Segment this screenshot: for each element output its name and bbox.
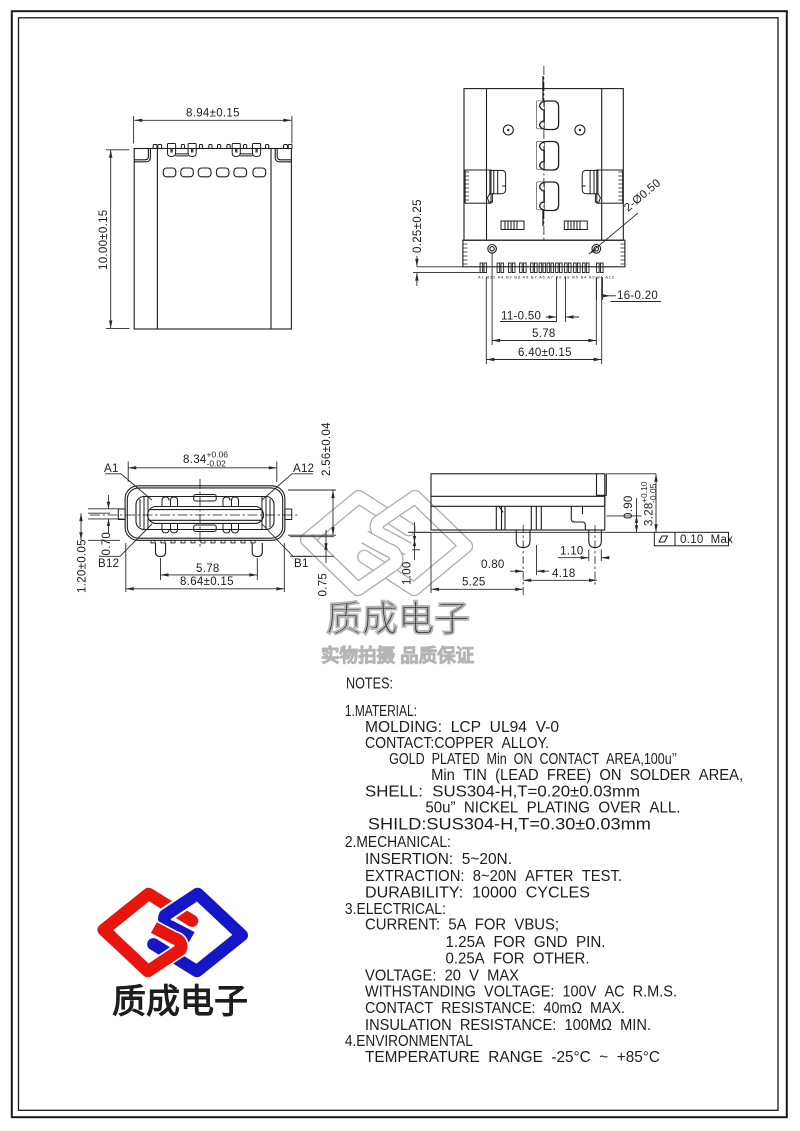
svg-text:10.00±0.15: 10.00±0.15 bbox=[98, 210, 110, 270]
svg-text:EXTRACTION: 8~20N AFTER TES: EXTRACTION: 8~20N AFTER TEST. bbox=[365, 868, 622, 885]
svg-text:实物拍摄 品质保证: 实物拍摄 品质保证 bbox=[321, 645, 475, 666]
svg-text:DURABILITY: 10000 CYCLES: DURABILITY: 10000 CYCLES bbox=[365, 885, 590, 902]
svg-text:3.28: 3.28 bbox=[644, 502, 656, 526]
svg-text:A1 B12 A4 B9 B8 A5 B7 A6 A: A1 B12 A4 B9 B8 A5 B7 A6 A7 B6 A8 B5 B4 … bbox=[478, 275, 615, 280]
svg-text:5.78: 5.78 bbox=[196, 563, 220, 575]
svg-text:11-0.50: 11-0.50 bbox=[501, 311, 541, 323]
svg-text:1.MATERIAL:: 1.MATERIAL: bbox=[345, 703, 417, 720]
svg-text:SHELL: SUS304-H,T=0.20±0.03mm: SHELL: SUS304-H,T=0.20±0.03mm bbox=[365, 783, 640, 800]
svg-text:CURRENT: 5A FOR VBUS;: CURRENT: 5A FOR VBUS; bbox=[365, 917, 559, 934]
svg-text:8.34: 8.34 bbox=[183, 454, 207, 466]
svg-text:WITHSTANDING VOLTAGE: 100V: WITHSTANDING VOLTAGE: 100V AC R.M.S. bbox=[365, 983, 677, 1000]
svg-text:1.10: 1.10 bbox=[560, 546, 584, 558]
svg-text:-0.05: -0.05 bbox=[648, 483, 658, 503]
svg-text:GOLD PLATED Min ON CONTACT: GOLD PLATED Min ON CONTACT AREA,100u’’ bbox=[389, 751, 677, 768]
svg-text:A1: A1 bbox=[104, 463, 119, 475]
svg-text:16-0.20: 16-0.20 bbox=[617, 290, 658, 302]
svg-text:CONTACT RESISTANCE: 40mΩ MA: CONTACT RESISTANCE: 40mΩ MAX. bbox=[365, 1000, 625, 1017]
svg-text:VOLTAGE: 20 V MAX: VOLTAGE: 20 V MAX bbox=[365, 967, 520, 984]
svg-text:INSULATION RESISTANCE: 100MΩ: INSULATION RESISTANCE: 100MΩ MIN. bbox=[365, 1017, 651, 1034]
svg-text:TEMPERATURE RANGE -25°C ~: TEMPERATURE RANGE -25°C ~ +85°C bbox=[365, 1049, 660, 1066]
svg-text:1.25A FOR GND PIN.: 1.25A FOR GND PIN. bbox=[446, 934, 606, 951]
svg-text:CONTACT:COPPER ALLOY.: CONTACT:COPPER ALLOY. bbox=[365, 735, 549, 752]
svg-text:SHILD:SUS304-H,T=0.30±0.03mm: SHILD:SUS304-H,T=0.30±0.03mm bbox=[368, 815, 651, 834]
svg-text:-0.02: -0.02 bbox=[207, 459, 227, 469]
svg-text:8.94±0.15: 8.94±0.15 bbox=[186, 108, 240, 120]
svg-text:MOLDING: LCP UL94 V-0: MOLDING: LCP UL94 V-0 bbox=[365, 719, 559, 736]
svg-text:质成电子: 质成电子 bbox=[112, 983, 248, 1021]
svg-text:6.40±0.15: 6.40±0.15 bbox=[518, 347, 572, 359]
svg-text:NOTES:: NOTES: bbox=[346, 676, 393, 693]
svg-text:3.ELECTRICAL:: 3.ELECTRICAL: bbox=[345, 901, 446, 918]
svg-text:A12: A12 bbox=[293, 463, 314, 475]
svg-text:5.25: 5.25 bbox=[462, 577, 486, 589]
svg-text:B1: B1 bbox=[294, 558, 309, 570]
svg-text:0.90: 0.90 bbox=[623, 495, 635, 519]
svg-text:B12: B12 bbox=[98, 558, 119, 570]
svg-text:4.18: 4.18 bbox=[552, 568, 576, 580]
svg-text:0.25A FOR OTHER.: 0.25A FOR OTHER. bbox=[446, 951, 590, 968]
svg-text:1.00: 1.00 bbox=[402, 561, 414, 585]
svg-text:质成电子: 质成电子 bbox=[326, 598, 470, 639]
svg-text:Min TIN (LEAD FREE) ON SO: Min TIN (LEAD FREE) ON SOLDER AREA, bbox=[431, 767, 743, 784]
svg-text:0.70: 0.70 bbox=[101, 532, 113, 556]
svg-text:2.56±0.04: 2.56±0.04 bbox=[321, 422, 333, 476]
svg-text:0.80: 0.80 bbox=[481, 559, 505, 571]
svg-text:INSERTION: 5~20N.: INSERTION: 5~20N. bbox=[365, 851, 512, 868]
svg-text:2.MECHANICAL:: 2.MECHANICAL: bbox=[345, 834, 451, 851]
svg-text:5.78: 5.78 bbox=[532, 328, 556, 340]
svg-text:4.ENVIRONMENTAL: 4.ENVIRONMENTAL bbox=[345, 1033, 473, 1050]
svg-text:0.25±0.25: 0.25±0.25 bbox=[412, 199, 424, 253]
svg-text:1.20±0.05: 1.20±0.05 bbox=[77, 539, 89, 593]
svg-text:8.64±0.15: 8.64±0.15 bbox=[180, 576, 234, 588]
svg-text:0.10 Max: 0.10 Max bbox=[680, 534, 733, 546]
svg-text:0.75: 0.75 bbox=[318, 573, 330, 597]
